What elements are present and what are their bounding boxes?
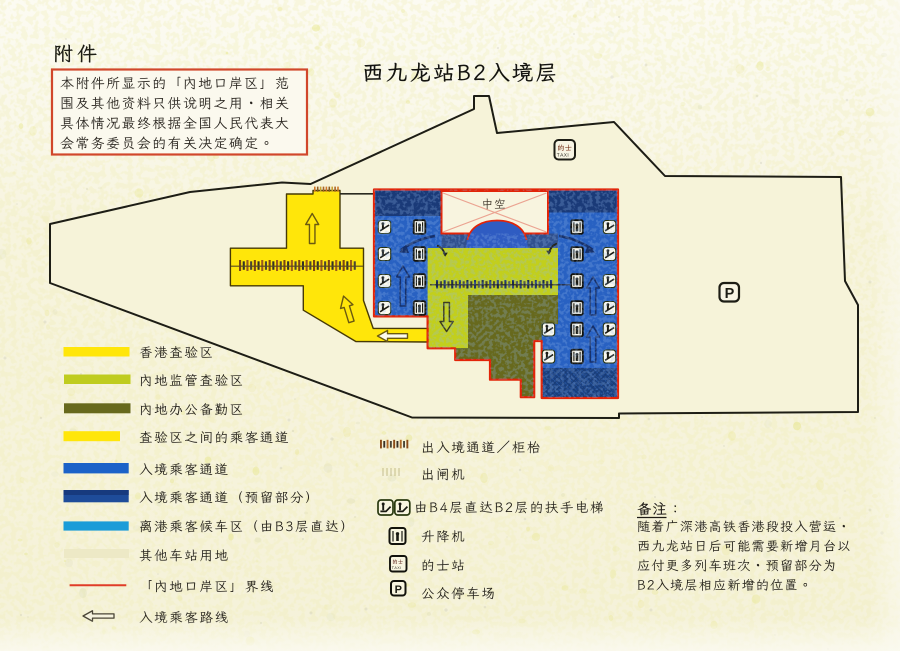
svg-text:P: P: [395, 584, 402, 596]
svg-text:P: P: [725, 286, 735, 302]
